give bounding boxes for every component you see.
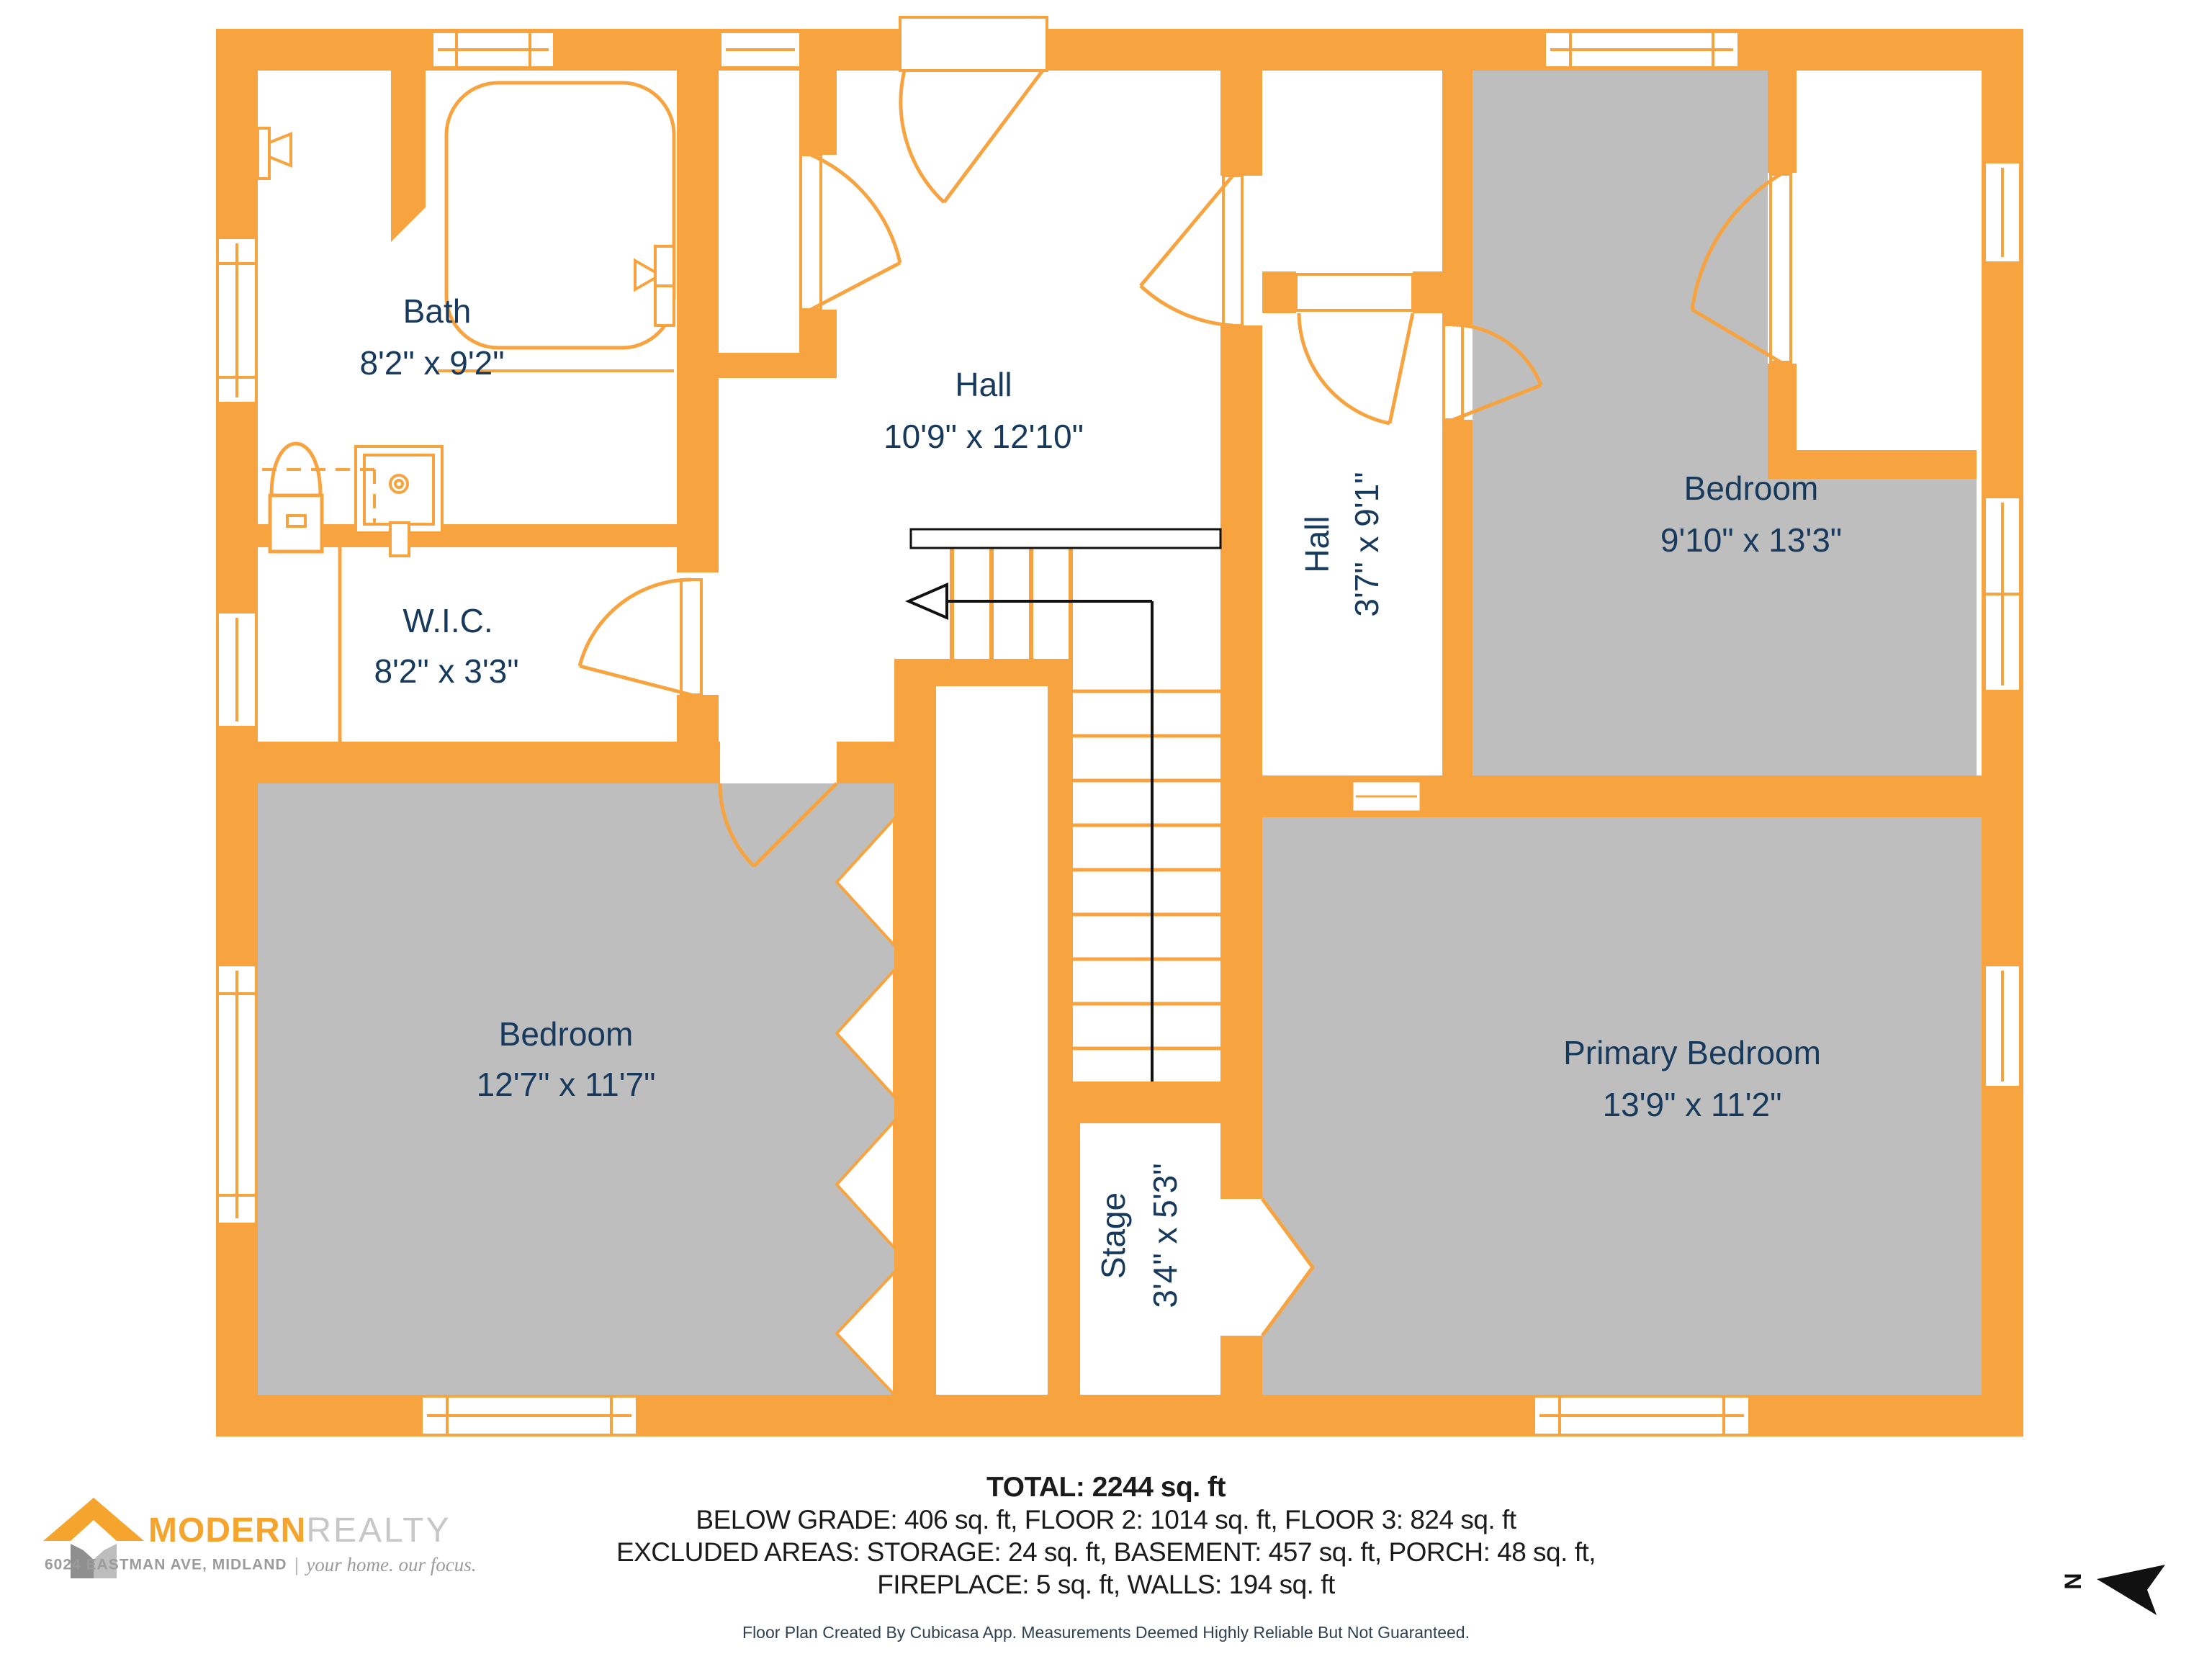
- summary-floors: BELOW GRADE: 406 sq. ft, FLOOR 2: 1014 s…: [0, 1505, 2212, 1535]
- entry-landing: [900, 17, 1047, 71]
- window: [1984, 965, 2020, 1087]
- room-label-bath: Bath: [403, 292, 472, 330]
- room-label-bedroom-left: Bedroom: [499, 1015, 634, 1053]
- room-dims-hall-small: 3'7" x 9'1": [1348, 472, 1385, 616]
- room-dims-wic: 8'2" x 3'3": [374, 652, 518, 690]
- window: [1352, 781, 1421, 811]
- shower-head-icon: [258, 128, 291, 179]
- window: [217, 238, 256, 403]
- room-dims-hall: 10'9" x 12'10": [884, 418, 1084, 455]
- room-label-stage: Stage: [1094, 1192, 1132, 1279]
- stair-up-arrow-icon: [909, 585, 947, 618]
- window: [217, 612, 256, 727]
- window: [1984, 162, 2020, 263]
- toilet-icon: [270, 444, 322, 552]
- summary-fireplace-walls: FIREPLACE: 5 sq. ft, WALLS: 194 sq. ft: [0, 1570, 2212, 1600]
- door-leaf: [801, 155, 821, 310]
- room-label-wic: W.I.C.: [403, 602, 493, 639]
- stair-treads-lower: [1073, 691, 1220, 1048]
- door-arc-hall-right: [1141, 176, 1233, 325]
- stair-landing: [911, 529, 1220, 548]
- room-dims-bath: 8'2" x 9'2": [359, 344, 504, 382]
- window: [421, 1396, 637, 1435]
- door-arc-hall-top: [901, 71, 1043, 202]
- shower-partition-corner: [391, 207, 426, 242]
- door-leaf: [1444, 325, 1462, 420]
- room-dims-stage: 3'4" x 5'3": [1146, 1163, 1184, 1308]
- disclaimer: Floor Plan Created By Cubicasa App. Meas…: [0, 1623, 2212, 1642]
- summary-excluded: EXCLUDED AREAS: STORAGE: 24 sq. ft, BASE…: [0, 1537, 2212, 1568]
- room-dims-primary: 13'9" x 11'2": [1603, 1086, 1782, 1123]
- window: [217, 965, 256, 1224]
- door-arc-closet: [811, 155, 900, 310]
- room-label-hall: Hall: [955, 366, 1012, 403]
- door-arc-wic: [580, 580, 691, 695]
- room-label-primary: Primary Bedroom: [1563, 1034, 1821, 1071]
- bath-fixtures: [238, 71, 674, 742]
- door-leaf: [1223, 176, 1242, 325]
- room-dims-bedroom-right: 9'10" x 13'3": [1660, 521, 1842, 559]
- door-leaf: [681, 580, 701, 695]
- floor-plan-drawing: Bath 8'2" x 9'2" W.I.C. 8'2" x 3'3" Hall…: [0, 0, 2212, 1659]
- bathtub: [446, 83, 674, 348]
- window: [720, 32, 801, 68]
- bedroom-right-fill: [1473, 71, 1977, 775]
- window: [1534, 1396, 1750, 1435]
- door-leaf: [1771, 174, 1791, 362]
- door-leaf: [1296, 274, 1413, 310]
- window: [432, 32, 554, 68]
- door-arc-small-hall: [1299, 313, 1413, 423]
- room-dims-bedroom-left: 12'7" x 11'7": [477, 1066, 656, 1103]
- room-label-hall-small: Hall: [1298, 516, 1336, 572]
- stair-treads-upper: [952, 548, 1071, 659]
- shower-partition: [391, 71, 426, 207]
- room-label-bedroom-right: Bedroom: [1684, 469, 1819, 507]
- summary-total: TOTAL: 2244 sq. ft: [0, 1472, 2212, 1503]
- window: [1545, 32, 1739, 68]
- window: [1984, 497, 2020, 691]
- floor-plan-page: Bath 8'2" x 9'2" W.I.C. 8'2" x 3'3" Hall…: [0, 0, 2212, 1659]
